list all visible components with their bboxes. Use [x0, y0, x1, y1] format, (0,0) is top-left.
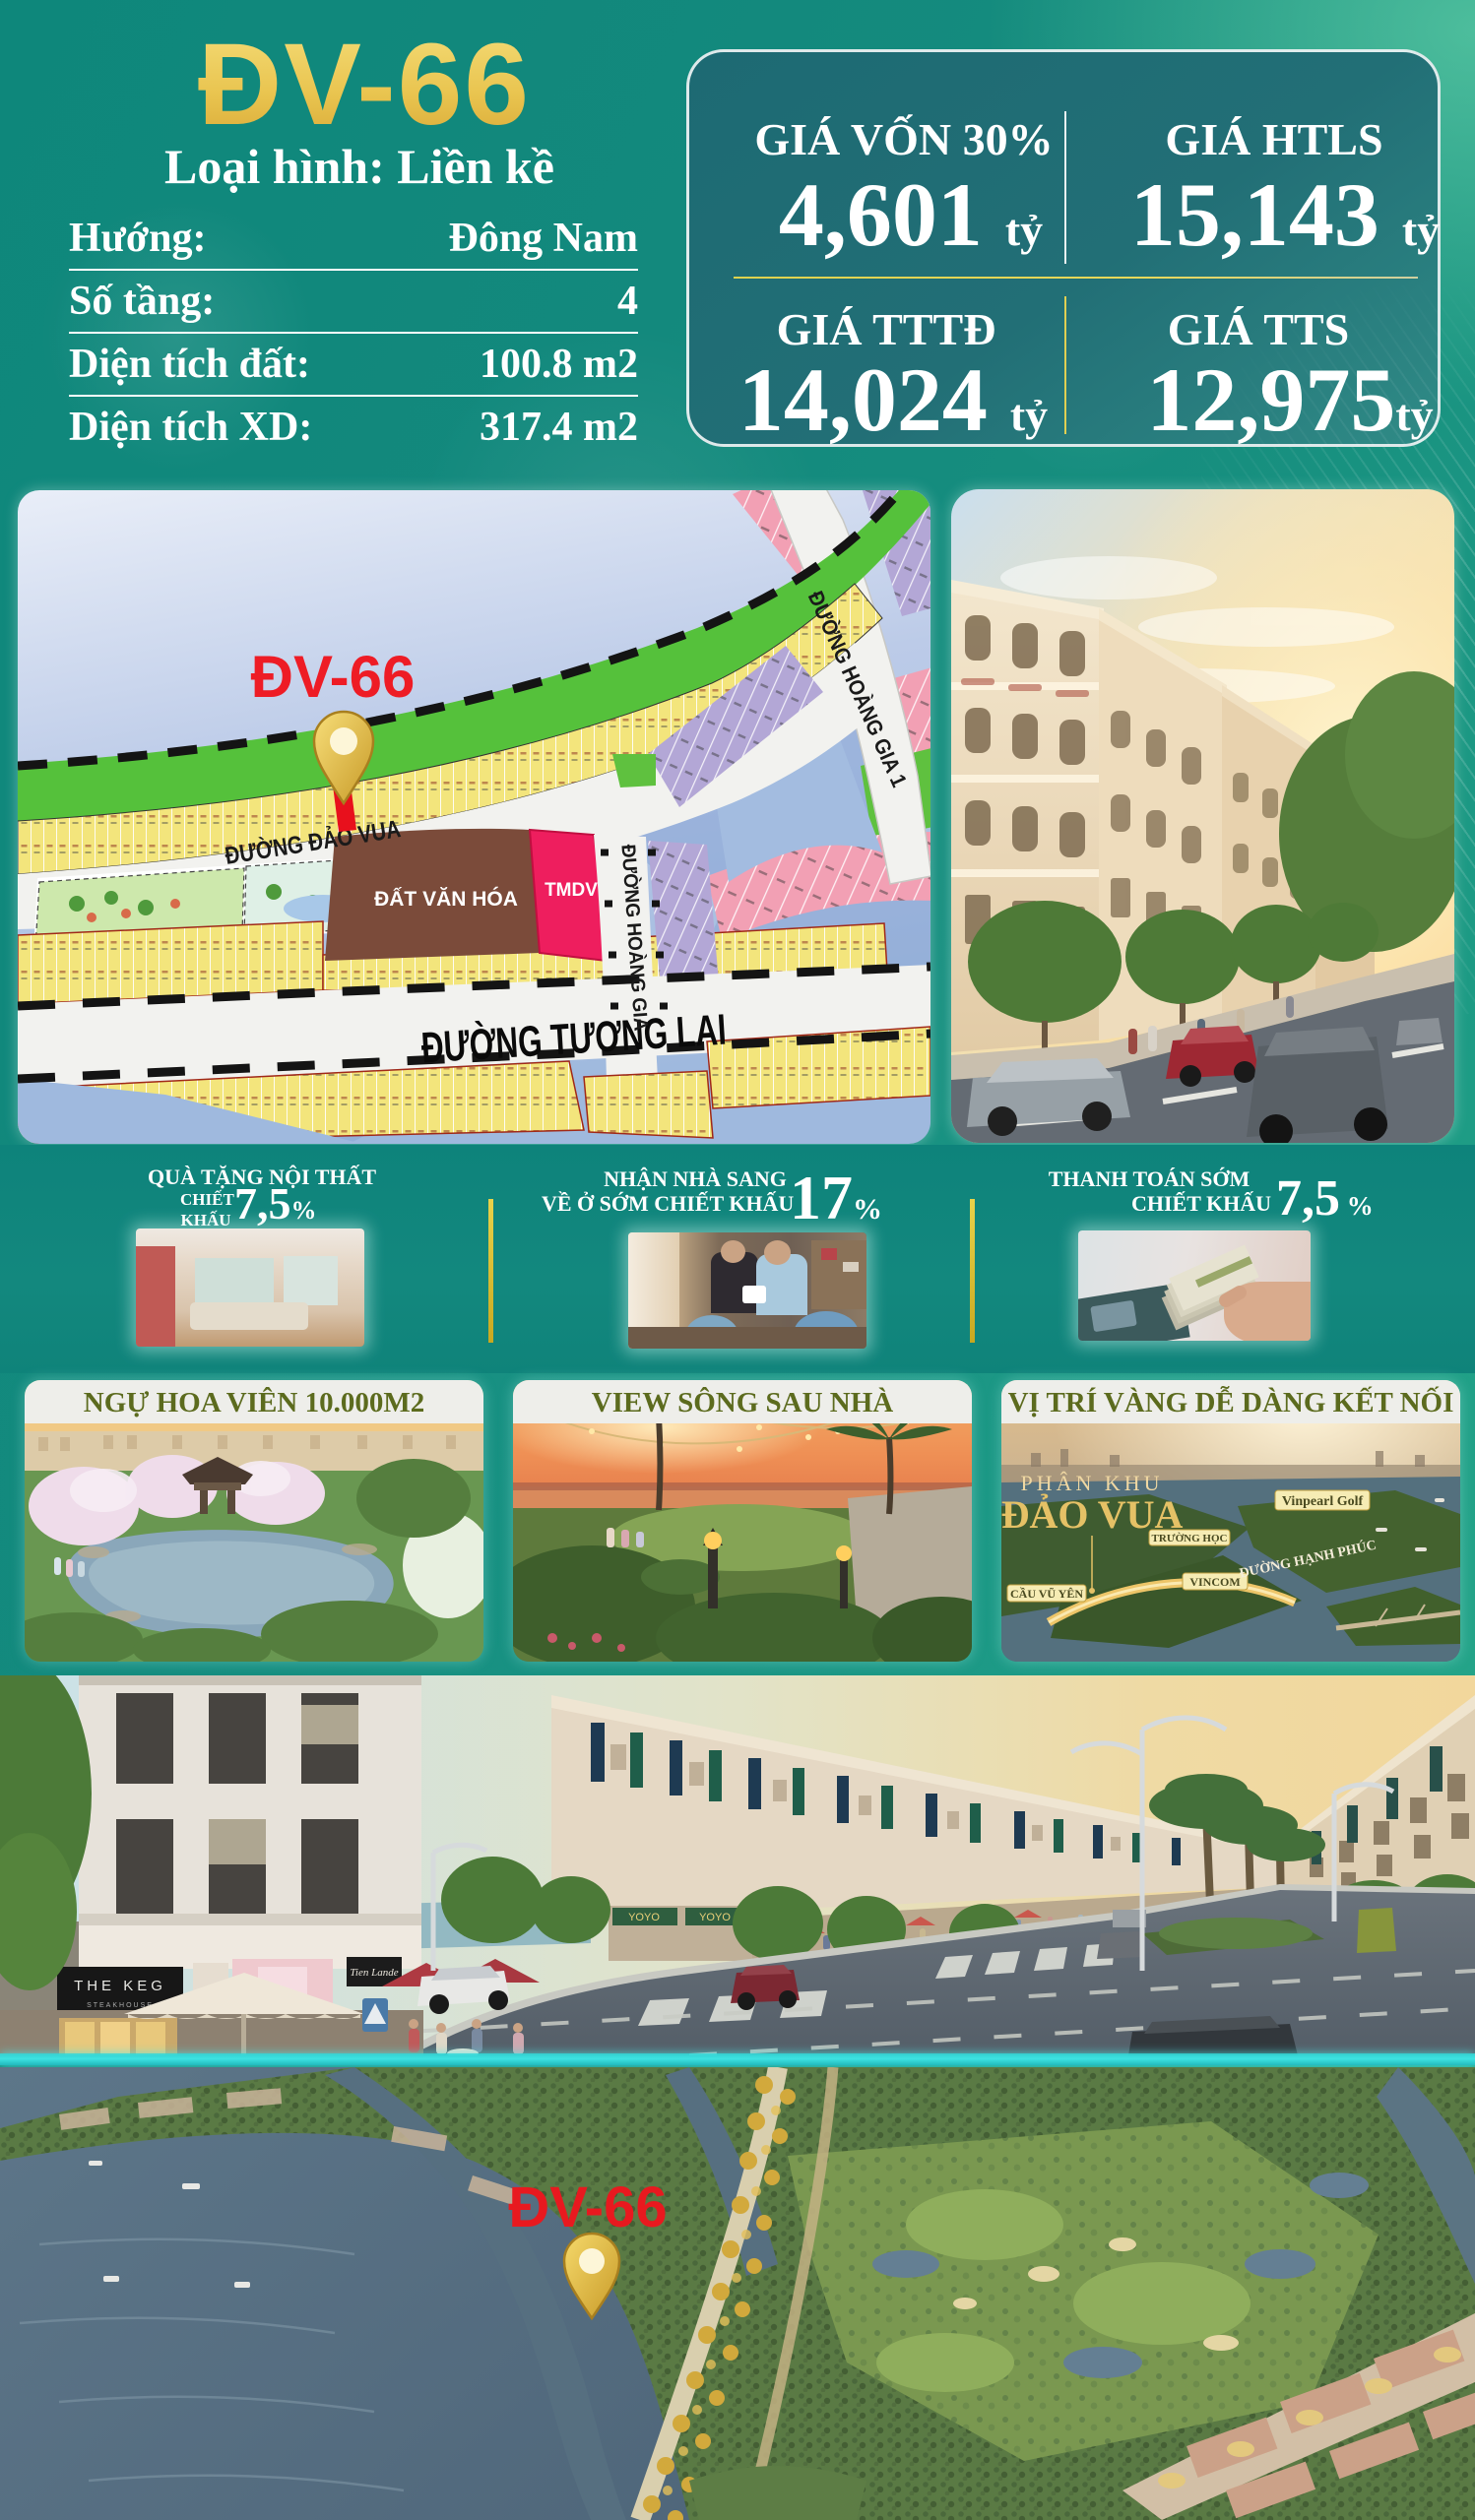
svg-text:YOYO: YOYO: [628, 1912, 660, 1923]
svg-text:VINCOM: VINCOM: [1189, 1575, 1240, 1589]
svg-text:ĐV-66: ĐV-66: [508, 2175, 667, 2239]
svg-text:TMDV: TMDV: [545, 880, 598, 901]
svg-text:YOYO: YOYO: [699, 1912, 731, 1923]
svg-text:THE KEG: THE KEG: [74, 1978, 166, 1994]
svg-text:ĐẤT VĂN HÓA: ĐẤT VĂN HÓA: [374, 887, 518, 911]
svg-text:Vinpearl Golf: Vinpearl Golf: [1282, 1494, 1364, 1509]
svg-text:ĐV-66: ĐV-66: [251, 644, 416, 710]
svg-text:CẦU VŨ YÊN: CẦU VŨ YÊN: [1010, 1586, 1083, 1601]
svg-text:Tien Lande: Tien Lande: [350, 1967, 398, 1979]
svg-text:TRƯỜNG HỌC: TRƯỜNG HỌC: [1152, 1533, 1228, 1544]
